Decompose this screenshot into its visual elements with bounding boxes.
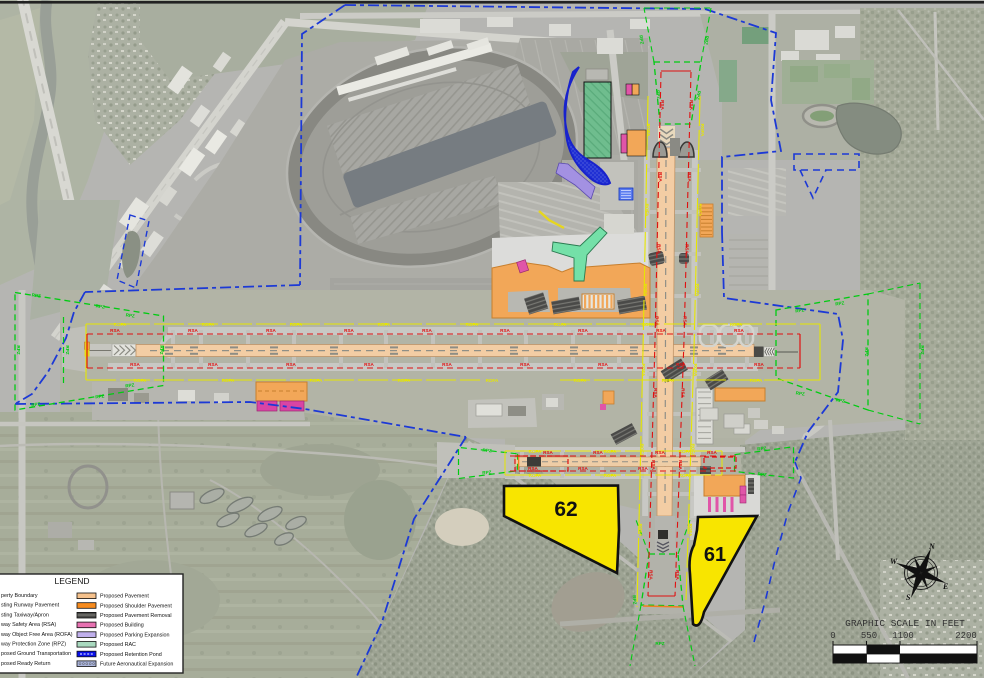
svg-text:ROFA: ROFA: [486, 378, 499, 383]
svg-text:RSA: RSA: [683, 316, 688, 326]
svg-text:RPZ: RPZ: [16, 345, 21, 354]
svg-text:RPZ: RPZ: [920, 345, 925, 354]
svg-text:ROFA: ROFA: [662, 378, 675, 383]
svg-text:ROFA: ROFA: [134, 378, 147, 383]
svg-text:RSA: RSA: [687, 172, 692, 182]
svg-text:ROFA: ROFA: [604, 473, 617, 478]
svg-text:ROFA: ROFA: [529, 473, 542, 478]
svg-text:0: 0: [830, 631, 835, 641]
svg-text:sting Taxiway/Apron: sting Taxiway/Apron: [1, 612, 49, 618]
svg-text:ROFA: ROFA: [604, 449, 617, 454]
svg-text:RSA: RSA: [500, 328, 510, 333]
svg-text:RSA: RSA: [543, 450, 553, 455]
svg-text:Proposed Retention Pond: Proposed Retention Pond: [100, 652, 162, 658]
svg-text:ROFA: ROFA: [643, 284, 648, 297]
svg-text:ROFA: ROFA: [640, 444, 645, 457]
svg-text:LEGEND: LEGEND: [55, 576, 90, 586]
svg-text:RPZ: RPZ: [757, 446, 767, 452]
svg-text:ROFA: ROFA: [222, 378, 235, 383]
svg-text:ROFA: ROFA: [202, 322, 215, 327]
svg-text:RPZ: RPZ: [655, 641, 664, 646]
svg-text:ROFA: ROFA: [638, 524, 643, 537]
svg-text:RSA: RSA: [655, 316, 660, 326]
svg-text:RPZ: RPZ: [757, 472, 767, 478]
svg-text:RPZ: RPZ: [482, 448, 492, 454]
svg-text:ROFA: ROFA: [641, 364, 646, 377]
svg-text:RSA: RSA: [578, 328, 588, 333]
svg-text:RSA: RSA: [656, 328, 666, 333]
svg-text:RPZ: RPZ: [65, 345, 70, 354]
svg-text:ROFA: ROFA: [679, 449, 692, 454]
svg-text:RSA: RSA: [593, 450, 603, 455]
svg-text:way Object Free Area (ROFA): way Object Free Area (ROFA): [0, 632, 73, 638]
svg-text:perty Boundary: perty Boundary: [1, 593, 38, 599]
svg-text:RPZ: RPZ: [159, 345, 164, 354]
svg-text:RPZ: RPZ: [632, 595, 638, 605]
svg-text:RSA: RSA: [520, 362, 530, 367]
svg-text:Proposed Pavement Removal: Proposed Pavement Removal: [100, 613, 172, 619]
svg-text:RSA: RSA: [130, 362, 140, 367]
svg-text:ROFA: ROFA: [290, 322, 303, 327]
svg-text:RSA: RSA: [638, 466, 648, 471]
svg-text:RSA: RSA: [651, 460, 656, 470]
svg-text:ROFA: ROFA: [679, 473, 692, 478]
svg-text:RSA: RSA: [689, 100, 694, 110]
svg-text:62: 62: [554, 498, 577, 521]
svg-text:RPZ: RPZ: [482, 470, 492, 476]
svg-text:Proposed Pavement: Proposed Pavement: [100, 594, 149, 600]
svg-text:RSA: RSA: [110, 328, 120, 333]
svg-text:ROFA: ROFA: [466, 322, 479, 327]
svg-text:ROFA: ROFA: [695, 284, 700, 297]
svg-text:W: W: [890, 557, 898, 566]
svg-text:RSA: RSA: [734, 328, 744, 333]
svg-text:Proposed Building: Proposed Building: [100, 623, 144, 629]
svg-text:61: 61: [704, 544, 726, 566]
svg-text:RSA: RSA: [364, 362, 374, 367]
svg-text:550: 550: [861, 631, 877, 641]
svg-text:RSA: RSA: [286, 362, 296, 367]
svg-text:ROFA: ROFA: [750, 378, 763, 383]
svg-text:way Safety Area (RSA): way Safety Area (RSA): [0, 622, 56, 628]
svg-text:GRAPHIC SCALE IN FEET: GRAPHIC SCALE IN FEET: [845, 618, 965, 629]
svg-text:ROFA: ROFA: [398, 378, 411, 383]
svg-text:ROFA: ROFA: [574, 378, 587, 383]
svg-text:RSA: RSA: [707, 450, 717, 455]
svg-text:ROFA: ROFA: [529, 449, 542, 454]
svg-text:RSA: RSA: [188, 328, 198, 333]
svg-text:Future Aeronautical Expansion: Future Aeronautical Expansion: [100, 662, 173, 668]
svg-text:ROFA: ROFA: [700, 124, 705, 137]
svg-text:RSA: RSA: [655, 450, 665, 455]
svg-text:ROFA: ROFA: [698, 204, 703, 217]
svg-text:2200: 2200: [955, 631, 977, 641]
svg-text:ROFA: ROFA: [688, 524, 693, 537]
svg-text:way Protection Zone (RPZ): way Protection Zone (RPZ): [0, 642, 66, 648]
svg-text:E: E: [942, 582, 948, 591]
svg-text:ROFA: ROFA: [310, 378, 323, 383]
svg-text:ROFA: ROFA: [378, 322, 391, 327]
svg-text:RSA: RSA: [685, 244, 690, 254]
svg-text:RSA: RSA: [528, 466, 538, 471]
svg-text:ROFA: ROFA: [646, 124, 651, 137]
svg-text:ROFA: ROFA: [114, 322, 127, 327]
svg-text:Proposed RAC: Proposed RAC: [100, 642, 136, 648]
svg-text:posed Ground Transportation: posed Ground Transportation: [1, 651, 71, 657]
svg-text:RSA: RSA: [653, 388, 658, 398]
svg-text:S: S: [906, 593, 911, 602]
svg-text:RSA: RSA: [660, 100, 665, 110]
svg-text:Proposed Parking Expansion: Proposed Parking Expansion: [100, 632, 170, 638]
svg-text:1100: 1100: [892, 631, 914, 641]
svg-text:RSA: RSA: [442, 362, 452, 367]
svg-text:RSA: RSA: [344, 328, 354, 333]
svg-text:RSA: RSA: [578, 466, 588, 471]
svg-text:RSA: RSA: [656, 244, 661, 254]
svg-text:RSA: RSA: [658, 172, 663, 182]
svg-text:RPZ: RPZ: [864, 347, 869, 356]
svg-text:ROFA: ROFA: [730, 322, 743, 327]
svg-text:sting Runway Pavement: sting Runway Pavement: [1, 603, 60, 609]
svg-text:RSA: RSA: [754, 362, 764, 367]
svg-text:ROFA: ROFA: [644, 204, 649, 217]
svg-text:ROFA: ROFA: [693, 364, 698, 377]
svg-text:RSA: RSA: [675, 570, 680, 580]
svg-text:RSA: RSA: [648, 570, 653, 580]
svg-text:RSA: RSA: [266, 328, 276, 333]
svg-text:RSA: RSA: [598, 362, 608, 367]
svg-text:posed Ready Return: posed Ready Return: [1, 661, 50, 667]
svg-text:Proposed Shoulder Pavement: Proposed Shoulder Pavement: [100, 603, 172, 609]
svg-text:ROFA: ROFA: [554, 322, 567, 327]
svg-text:RSA: RSA: [678, 460, 683, 470]
svg-text:RSA: RSA: [422, 328, 432, 333]
svg-text:RSA: RSA: [208, 362, 218, 367]
svg-text:RSA: RSA: [676, 362, 686, 367]
svg-text:RSA: RSA: [680, 388, 685, 398]
